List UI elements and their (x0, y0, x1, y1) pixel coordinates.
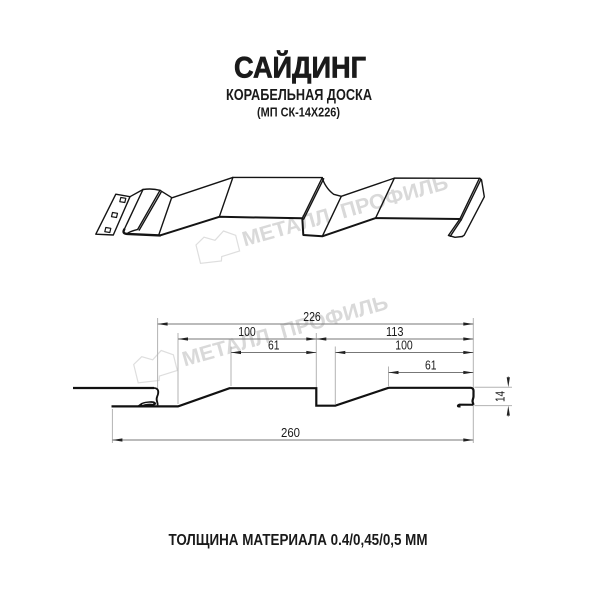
svg-text:САЙДИНГ: САЙДИНГ (234, 51, 366, 85)
svg-text:113: 113 (386, 325, 404, 339)
svg-text:100: 100 (238, 325, 256, 339)
svg-text:61: 61 (425, 359, 437, 373)
svg-text:(МП СК-14Х226): (МП СК-14Х226) (257, 106, 340, 120)
svg-text:КОРАБЕЛЬНАЯ ДОСКА: КОРАБЕЛЬНАЯ ДОСКА (226, 87, 372, 104)
svg-text:МЕТАЛЛ ПРОФИЛЬ: МЕТАЛЛ ПРОФИЛЬ (240, 171, 451, 251)
svg-text:14: 14 (494, 391, 508, 402)
svg-text:61: 61 (268, 339, 280, 353)
svg-text:226: 226 (303, 310, 321, 324)
svg-text:МЕТАЛЛ ПРОФИЛЬ: МЕТАЛЛ ПРОФИЛЬ (180, 291, 391, 371)
svg-text:260: 260 (281, 426, 300, 440)
svg-text:ТОЛЩИНА МАТЕРИАЛА 0.4/0,45/0,5: ТОЛЩИНА МАТЕРИАЛА 0.4/0,45/0,5 ММ (169, 532, 428, 549)
svg-text:100: 100 (395, 339, 413, 353)
